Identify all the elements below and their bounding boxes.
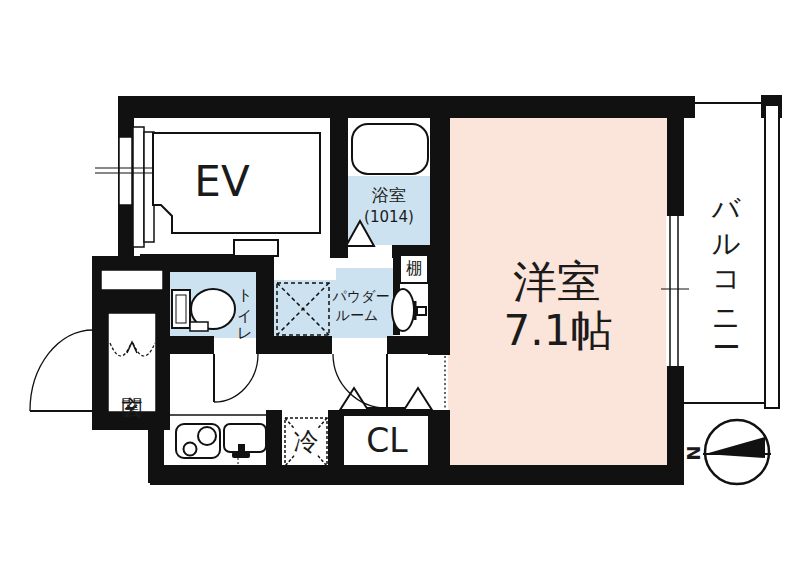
wall-ev-bath-divider (330, 118, 348, 258)
wall-entrance-bottom (92, 410, 164, 430)
closet-door-triangle (404, 388, 432, 410)
stove-icon (176, 424, 220, 458)
powder-room-label-1: パウダー (333, 289, 390, 304)
bathroom-size-label: (1014) (364, 210, 414, 226)
basin-icon (392, 289, 426, 331)
wall-top (120, 96, 695, 118)
wall-hall-seg3 (387, 336, 450, 354)
powder-room-label-2: ルーム (336, 308, 379, 323)
floor-plan-drawing (0, 0, 800, 586)
shelf-label: 棚 (406, 261, 422, 278)
wall-toilet-powder-divider (256, 254, 274, 338)
refrigerator-label: 冷 (293, 429, 320, 455)
closet-door-triangle (340, 388, 368, 410)
kitchen-sink-icon (224, 424, 266, 465)
elevator-label: EV (194, 160, 249, 204)
wall-hall-seg2 (256, 336, 332, 354)
bathtub-icon (352, 124, 428, 174)
compass-icon (703, 420, 771, 484)
floor-plan: EV 浴室 (1014) 棚 トイレ パウダー ルーム 玄関 冷 CL 洋室 7… (0, 0, 800, 586)
wall-bottom (150, 465, 684, 485)
entrance-label: 玄関 (121, 379, 143, 385)
toilet-icon (172, 289, 235, 331)
kitchen-icons (164, 415, 266, 465)
window-gap (666, 216, 685, 366)
western-room-label: 洋室 (513, 259, 601, 305)
toilet-label: トイレ (236, 278, 252, 335)
western-room-size-label: 7.1帖 (504, 309, 613, 353)
entrance-door-arc (30, 330, 93, 411)
wall-bath-bottom-left (330, 245, 342, 258)
entrance-hall-area (108, 313, 156, 412)
pipe-niche (101, 270, 163, 290)
bathroom-label: 浴室 (372, 187, 406, 205)
toilet-door-arc (214, 354, 258, 402)
balcony-label: バルコニー (711, 177, 740, 339)
compass-north-label: N (684, 445, 703, 460)
wall-hall-seg1 (168, 336, 214, 354)
closet-label: CL (366, 424, 407, 459)
wall-bath-east (430, 118, 450, 258)
